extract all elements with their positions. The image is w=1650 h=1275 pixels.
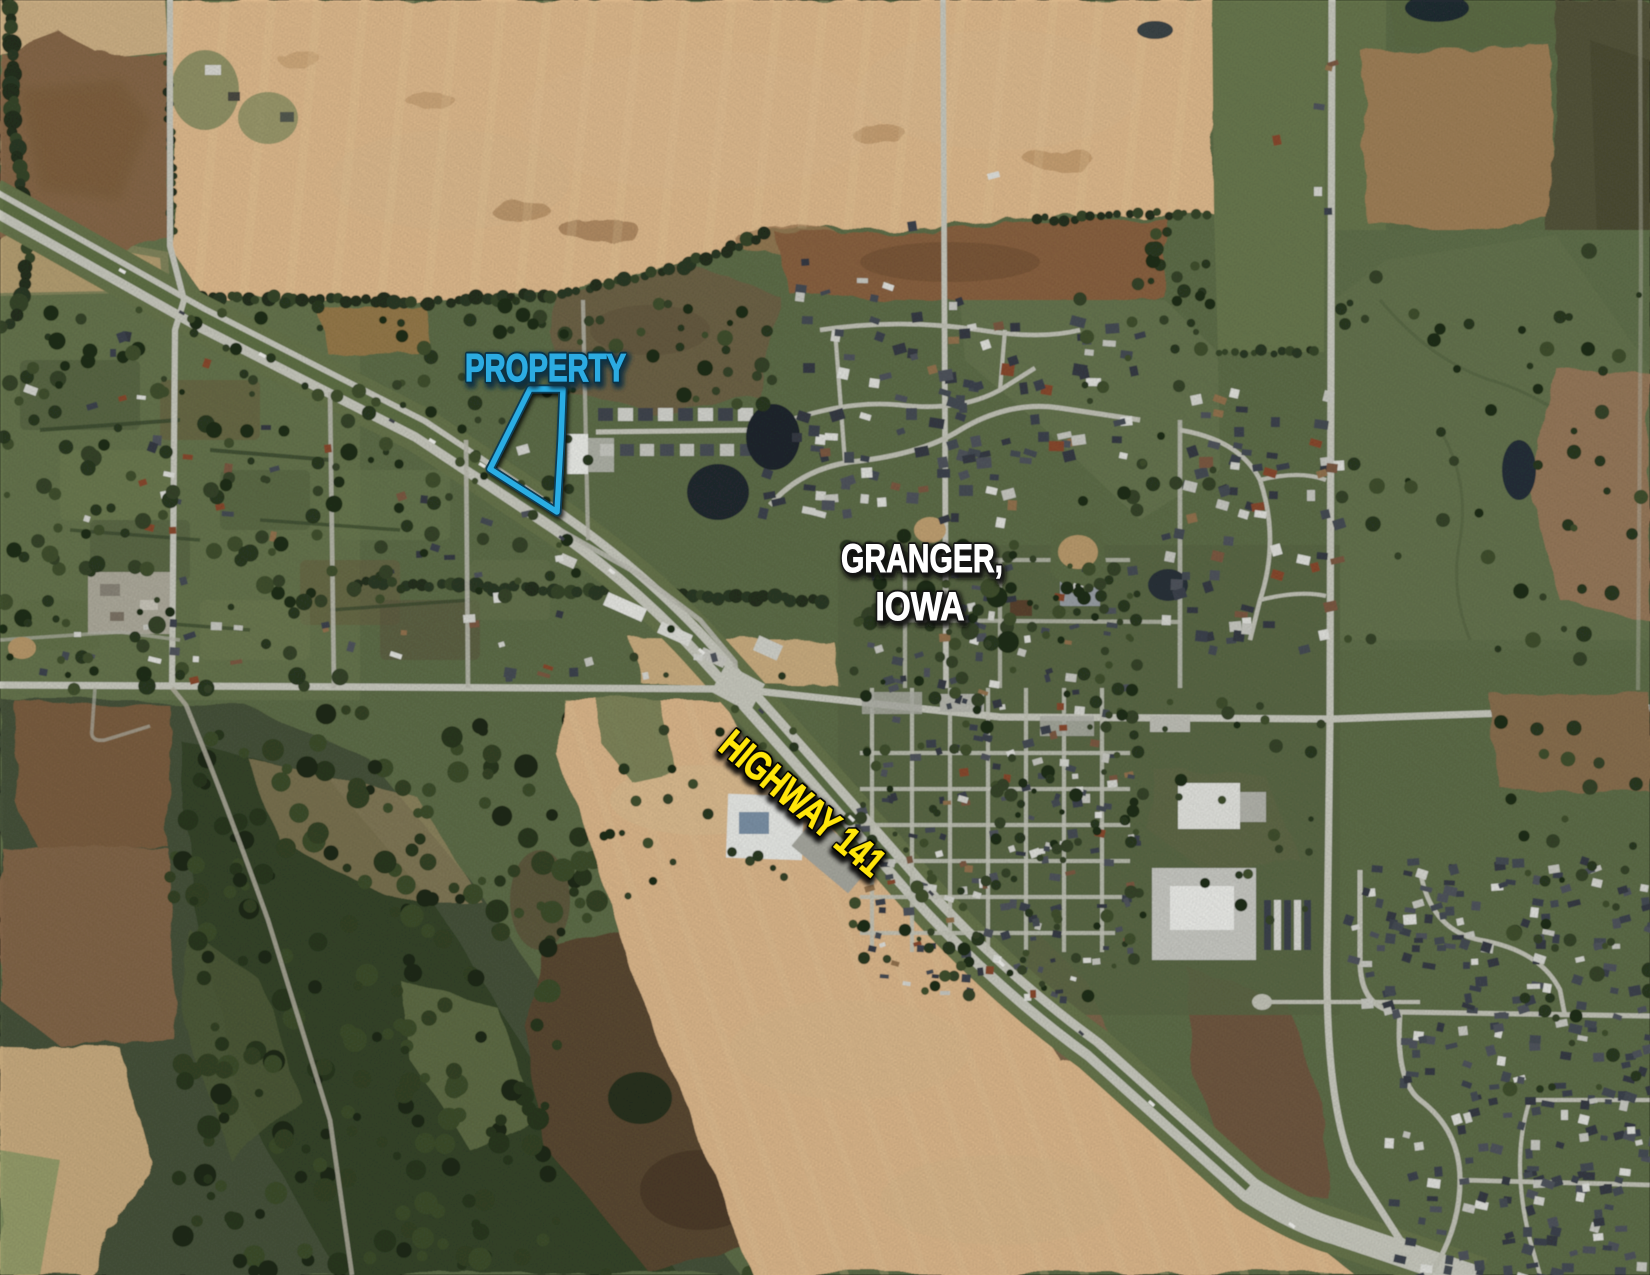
- svg-text:IOWA: IOWA: [876, 585, 965, 629]
- svg-text:GRANGER,: GRANGER,: [841, 537, 1003, 581]
- svg-text:PROPERTY: PROPERTY: [465, 347, 626, 390]
